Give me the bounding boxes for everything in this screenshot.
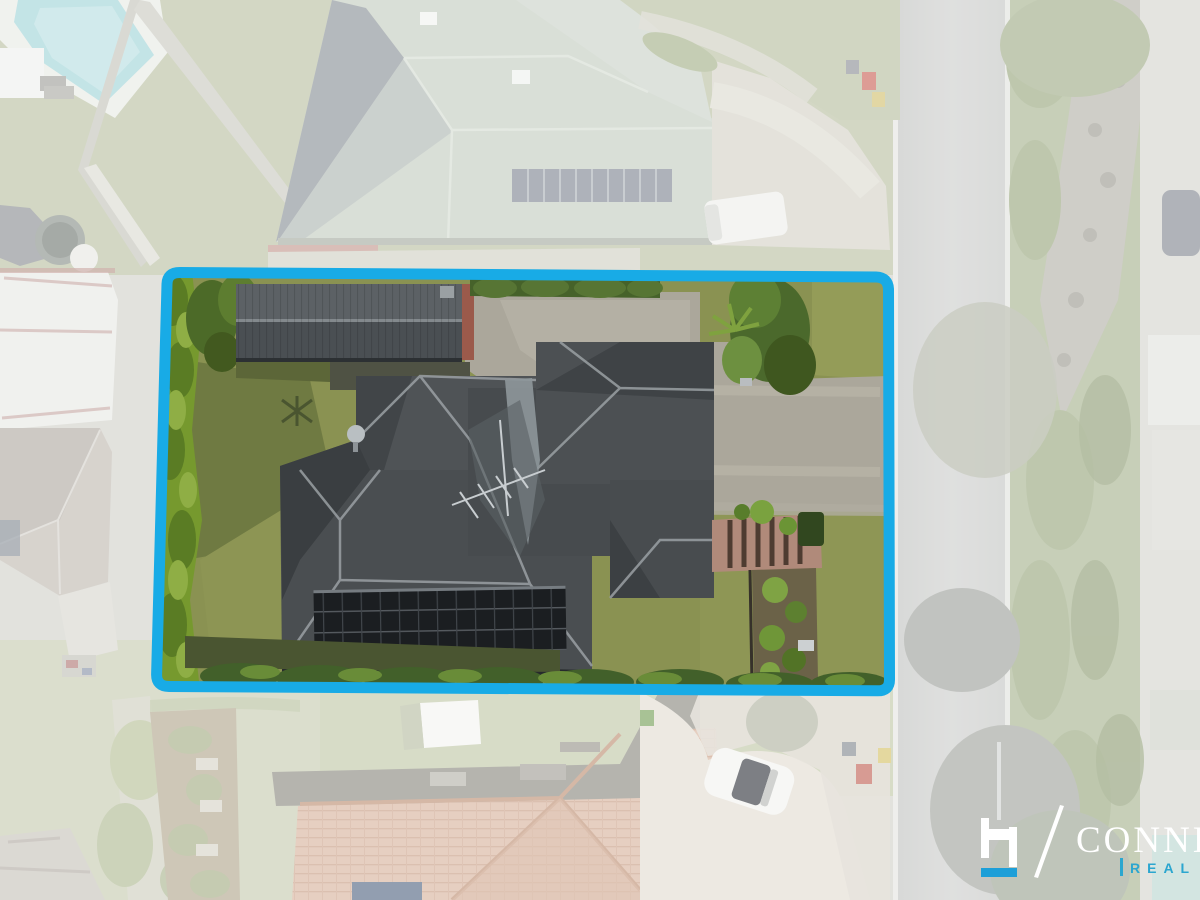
svg-text:CONNE: CONNE — [1076, 820, 1200, 861]
svg-text:REAL: REAL — [1130, 860, 1196, 876]
